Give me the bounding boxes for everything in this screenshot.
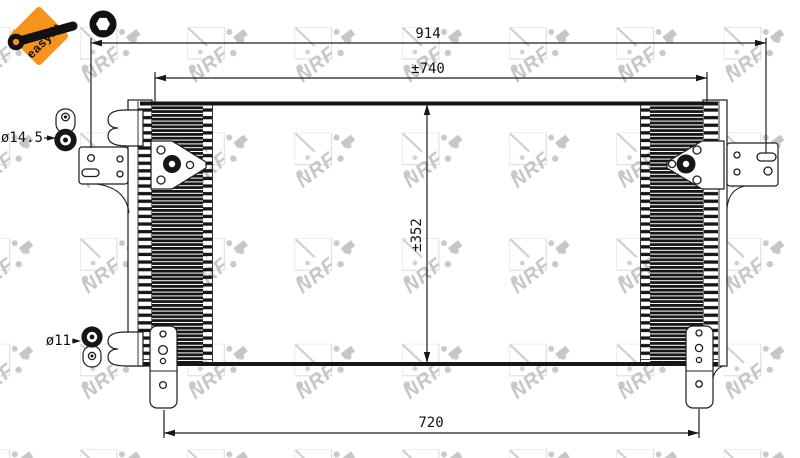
top-fitting-label: ø14.5	[1, 130, 43, 146]
left-tube-stubs	[203, 106, 212, 360]
mounting-width-label: 720	[418, 415, 443, 431]
top-header	[140, 102, 718, 106]
core-width-label: ±740	[411, 61, 445, 77]
bottom-fitting-label: ø11	[46, 333, 71, 349]
right-tube-stubs	[641, 106, 650, 360]
left-foot-bracket	[150, 326, 177, 408]
bottom-header	[140, 362, 718, 366]
technical-drawing: NRF easyfit	[0, 0, 800, 458]
core-height-label: ±352	[409, 218, 425, 252]
overall-width-label: 914	[415, 26, 440, 42]
right-fins	[650, 106, 703, 363]
